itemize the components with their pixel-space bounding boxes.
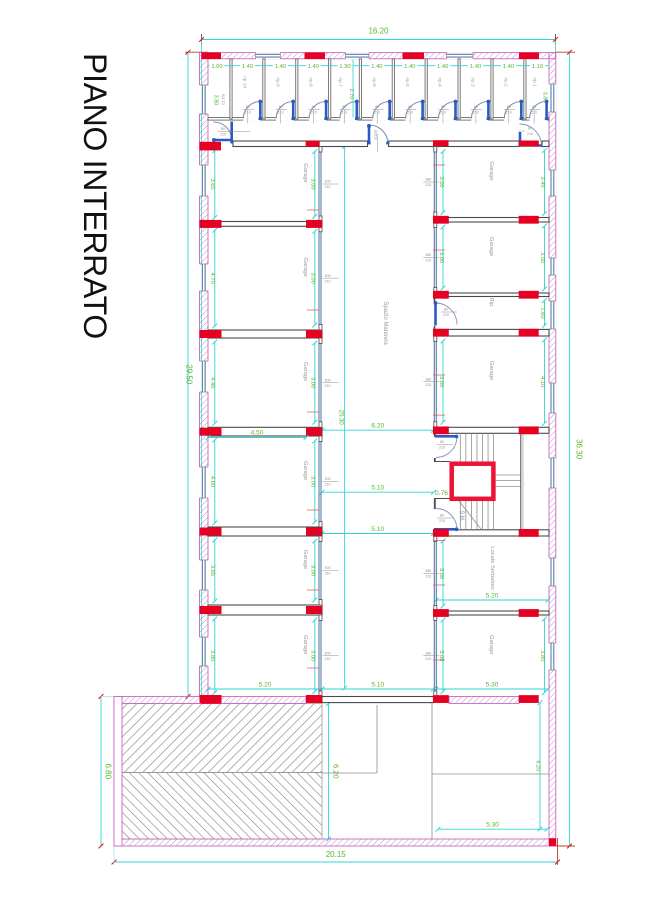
svg-text:300: 300 — [325, 274, 331, 278]
svg-text:25.30: 25.30 — [338, 410, 344, 426]
svg-text:210: 210 — [439, 446, 445, 450]
svg-text:16.20: 16.20 — [368, 27, 389, 36]
svg-text:300: 300 — [325, 180, 331, 184]
svg-text:S.M.: S.M. — [459, 511, 465, 522]
svg-text:80: 80 — [279, 105, 283, 109]
svg-text:Garage: Garage — [302, 257, 308, 276]
svg-text:PIANO INTERRATO: PIANO INTERRATO — [77, 53, 113, 339]
svg-text:Spazio Manovra: Spazio Manovra — [382, 301, 388, 345]
svg-text:29.50: 29.50 — [185, 364, 194, 385]
svg-text:80: 80 — [342, 105, 346, 109]
svg-text:3.65: 3.65 — [209, 565, 215, 576]
svg-text:210: 210 — [425, 383, 431, 387]
svg-text:380: 380 — [425, 377, 431, 381]
svg-text:3.00: 3.00 — [309, 476, 315, 487]
svg-text:4.10: 4.10 — [539, 376, 545, 387]
svg-text:1.40: 1.40 — [371, 64, 382, 70]
svg-text:80: 80 — [440, 440, 444, 444]
svg-text:210: 210 — [425, 183, 431, 187]
svg-text:Garage: Garage — [302, 163, 308, 182]
svg-text:Garage: Garage — [488, 635, 494, 654]
svg-text:80: 80 — [441, 105, 445, 109]
svg-text:6.20: 6.20 — [535, 760, 541, 771]
svg-text:rip.7: rip.7 — [337, 77, 343, 87]
svg-text:3.00: 3.00 — [309, 565, 315, 576]
svg-text:80: 80 — [474, 105, 478, 109]
svg-text:0.76: 0.76 — [435, 490, 448, 497]
svg-text:4.60: 4.60 — [209, 476, 215, 487]
svg-text:80: 80 — [221, 127, 225, 131]
svg-text:80: 80 — [528, 127, 532, 131]
svg-text:5.30: 5.30 — [486, 682, 499, 689]
svg-text:Garage: Garage — [302, 635, 308, 654]
svg-text:380: 380 — [425, 178, 431, 182]
svg-text:Rip: Rip — [488, 298, 494, 307]
svg-text:Garage: Garage — [488, 237, 494, 256]
svg-text:1.40: 1.40 — [503, 64, 514, 70]
svg-text:80: 80 — [507, 105, 511, 109]
svg-text:3.80: 3.80 — [209, 650, 215, 661]
svg-text:3.00: 3.00 — [309, 178, 315, 189]
svg-text:Locale Serbatoio: Locale Serbatoio — [489, 546, 495, 590]
svg-text:3.80: 3.80 — [539, 650, 545, 661]
svg-text:Garage: Garage — [488, 361, 494, 380]
svg-text:3.00: 3.00 — [309, 273, 315, 284]
svg-text:3.50: 3.50 — [539, 252, 545, 263]
svg-text:80: 80 — [440, 514, 444, 518]
svg-text:3.45: 3.45 — [539, 176, 545, 187]
svg-text:210: 210 — [220, 133, 226, 137]
svg-text:3.00: 3.00 — [309, 377, 315, 388]
svg-text:380: 380 — [425, 569, 431, 573]
svg-text:20.15: 20.15 — [326, 850, 347, 859]
svg-text:1.40: 1.40 — [437, 64, 448, 70]
svg-text:5.10: 5.10 — [371, 526, 384, 533]
svg-text:4.50: 4.50 — [251, 430, 264, 437]
svg-text:5.10: 5.10 — [371, 485, 384, 492]
svg-text:rip.8: rip.8 — [307, 77, 313, 87]
svg-text:80: 80 — [312, 105, 316, 109]
svg-text:1.60: 1.60 — [539, 307, 545, 318]
svg-text:5.20: 5.20 — [259, 682, 272, 689]
svg-text:rip.10: rip.10 — [242, 76, 248, 88]
svg-text:3.00: 3.00 — [309, 650, 315, 661]
svg-text:1.30: 1.30 — [339, 64, 350, 70]
svg-text:300: 300 — [325, 378, 331, 382]
svg-text:4.40: 4.40 — [209, 377, 215, 388]
svg-text:1.00: 1.00 — [211, 64, 222, 70]
svg-text:Garage: Garage — [302, 550, 308, 569]
svg-text:Garage: Garage — [302, 362, 308, 381]
svg-text:3.80: 3.80 — [213, 95, 219, 106]
svg-text:210: 210 — [425, 259, 431, 263]
svg-text:rip.11: rip.11 — [220, 94, 226, 106]
svg-text:rip.9: rip.9 — [274, 77, 280, 87]
svg-text:1.40: 1.40 — [275, 64, 286, 70]
svg-text:80: 80 — [375, 105, 379, 109]
svg-text:1.10: 1.10 — [532, 64, 543, 70]
svg-text:rip.1: rip.1 — [532, 77, 538, 87]
svg-text:80: 80 — [444, 308, 448, 312]
svg-text:36.30: 36.30 — [575, 439, 584, 460]
svg-text:6.80: 6.80 — [104, 763, 113, 779]
svg-text:5.10: 5.10 — [371, 682, 384, 689]
svg-text:210: 210 — [325, 483, 331, 487]
svg-text:380: 380 — [425, 651, 431, 655]
svg-text:5.30: 5.30 — [486, 822, 499, 829]
svg-text:210: 210 — [425, 657, 431, 661]
svg-text:6.20: 6.20 — [332, 764, 341, 779]
svg-text:210: 210 — [325, 657, 331, 661]
svg-text:210: 210 — [325, 572, 331, 576]
svg-text:380: 380 — [425, 253, 431, 257]
svg-text:6.20: 6.20 — [371, 423, 384, 430]
svg-text:80: 80 — [408, 105, 412, 109]
svg-text:210: 210 — [425, 575, 431, 579]
svg-text:rip.2: rip.2 — [503, 77, 509, 87]
svg-text:80: 80 — [246, 105, 250, 109]
svg-text:1.40: 1.40 — [404, 64, 415, 70]
svg-text:rip.6: rip.6 — [371, 77, 377, 87]
svg-text:Garage: Garage — [488, 161, 494, 180]
svg-text:210: 210 — [325, 279, 331, 283]
svg-text:300: 300 — [325, 566, 331, 570]
svg-text:210: 210 — [439, 519, 445, 523]
svg-text:1.40: 1.40 — [308, 64, 319, 70]
svg-text:210: 210 — [325, 384, 331, 388]
svg-text:300: 300 — [325, 477, 331, 481]
svg-text:rip.5: rip.5 — [404, 77, 410, 87]
svg-text:5.20: 5.20 — [486, 593, 499, 600]
svg-text:3.65: 3.65 — [209, 178, 215, 189]
svg-text:210: 210 — [527, 132, 533, 136]
svg-text:Garage: Garage — [302, 461, 308, 480]
svg-text:210: 210 — [325, 185, 331, 189]
svg-text:4.70: 4.70 — [209, 273, 215, 284]
svg-text:1.40: 1.40 — [470, 64, 481, 70]
svg-text:80/210: 80/210 — [374, 130, 378, 140]
svg-text:210: 210 — [443, 313, 449, 317]
svg-text:80: 80 — [532, 105, 536, 109]
svg-text:rip.3: rip.3 — [470, 77, 476, 87]
svg-text:300: 300 — [325, 651, 331, 655]
svg-text:1.40: 1.40 — [242, 64, 253, 70]
svg-text:rip.4: rip.4 — [437, 77, 443, 87]
